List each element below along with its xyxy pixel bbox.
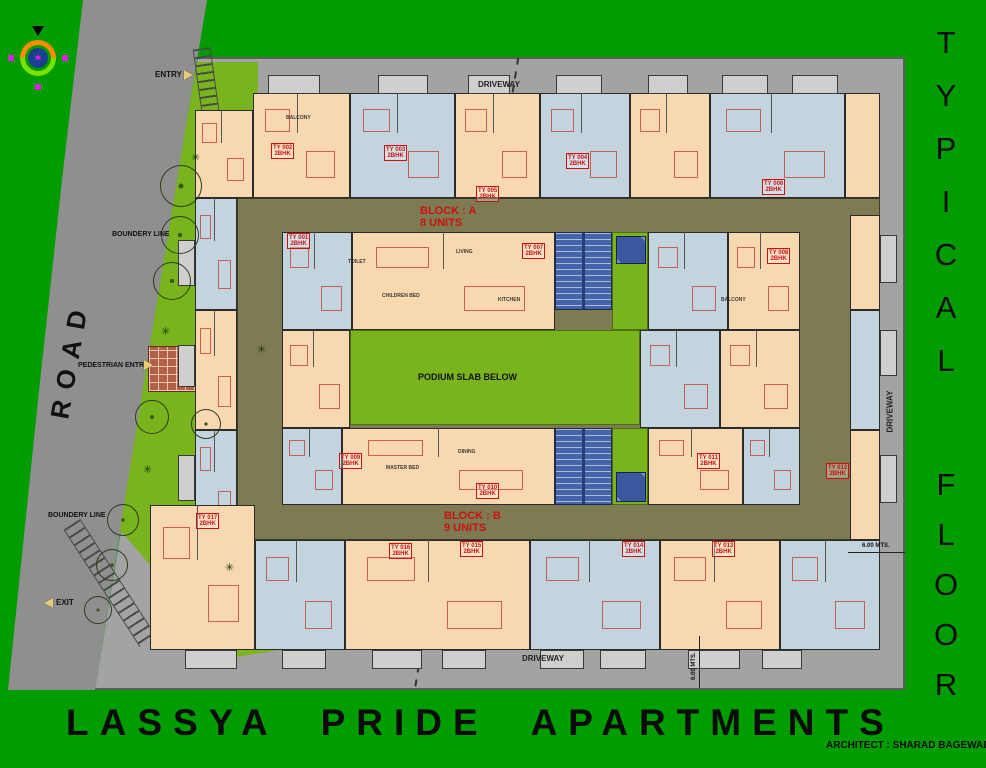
boundary-line-label-1: BOUNDERY LINE [112,231,170,238]
unit [850,430,880,540]
side-title-letter: O [916,560,976,610]
unit [850,310,880,430]
interior-wall [825,540,826,582]
dimension-right-label: 6.00 MTS. [862,543,890,549]
interior-wall [684,232,685,269]
furniture-mark [502,151,528,178]
furniture-mark [218,376,231,407]
unit-label: TY 0172BHK [196,513,219,529]
furniture-mark [726,109,761,132]
furniture-mark [363,109,390,132]
balcony [722,75,768,94]
entry-arrow-icon [184,70,193,80]
unit-label: TY 0032BHK [384,145,407,161]
interior-wall [691,428,692,457]
interior-wall [493,93,494,133]
furniture-mark [700,470,729,490]
furniture-mark [768,286,790,311]
furniture-mark [202,123,217,142]
block-b-units: 9 UNITS [444,522,486,534]
balcony [268,75,320,94]
furniture-mark [658,247,679,269]
compass-east-marker [62,55,68,61]
furniture-mark [674,557,705,581]
staircase [555,232,612,310]
tree-icon [96,549,128,581]
furniture-mark [266,557,289,581]
unit-label: TY 0052BHK [476,186,499,202]
furniture-mark [319,384,339,409]
side-title-letter: I [916,175,976,228]
room-label: BALCONY [721,298,746,303]
room-label: LIVING [456,250,473,255]
furniture-mark [546,557,580,581]
interior-wall [589,540,590,582]
unit-label: TY 0122BHK [826,463,849,479]
interior-wall [297,93,298,133]
tree-icon [153,262,191,300]
interior-wall [309,428,310,457]
side-title-letter: C [916,228,976,281]
driveway-right-label: DRIVEWAY [886,373,895,433]
side-title-typical: TYPICAL [916,16,976,387]
balcony [648,75,688,94]
units-layer: ✳✳✳✳✳TY 0012BHKTY 0022BHKTY 0032BHKTY 00… [0,0,986,768]
side-title-letter: P [916,122,976,175]
furniture-mark [447,601,503,630]
unit-label: TY 0112BHK [697,453,720,469]
furniture-mark [551,109,574,132]
lift [616,472,646,502]
room-label: BALCONY [286,116,311,121]
interior-wall [581,93,582,133]
furniture-mark [792,557,818,581]
balcony [880,455,897,503]
furniture-mark [764,384,788,409]
unit-label: TY 0062BHK [762,179,785,195]
exit-label: EXIT [56,598,74,607]
side-title-floor: FLOOR [916,460,976,710]
furniture-mark [650,345,671,367]
interior-wall [760,232,761,269]
tree-icon [84,596,112,624]
balcony [880,330,897,376]
pedestrian-entry-label: PEDESTRIAN ENTRY [78,362,149,369]
interior-wall [314,232,315,269]
interior-wall [397,93,398,133]
furniture-mark [684,384,708,409]
balcony [185,650,237,669]
tree-icon [135,400,169,434]
interior-wall [221,110,222,143]
furniture-mark [290,345,308,367]
architect-credit: ARCHITECT : SHARAD BAGEWADI [826,740,986,751]
unit [845,93,880,198]
interior-wall [443,232,444,269]
furniture-mark [305,601,332,630]
shrub-icon: ✳ [143,465,152,475]
interior-wall [214,310,215,356]
furniture-mark [784,151,825,178]
exit-arrow-icon [44,598,53,608]
site-plan-canvas: ✳✳✳✳✳TY 0012BHKTY 0022BHKTY 0032BHKTY 00… [0,0,986,768]
side-title-letter: F [916,460,976,510]
furniture-mark [465,109,487,132]
furniture-mark [602,601,641,630]
furniture-mark [367,557,415,581]
furniture-mark [640,109,661,132]
furniture-mark [737,247,756,269]
furniture-mark [692,286,716,311]
furniture-mark [227,158,244,181]
interior-wall [771,93,772,133]
boundary-line-label-2: BOUNDERY LINE [48,512,106,519]
furniture-mark [208,585,240,623]
compass-south-marker [35,84,41,90]
furniture-mark [376,247,429,269]
entry-label: ENTRY [155,70,182,79]
furniture-mark [590,151,617,178]
shrub-icon: ✳ [225,563,234,573]
balcony [372,650,422,669]
room-label: MASTER BED [386,466,419,471]
furniture-mark [315,470,333,490]
unit-label: TY 0092BHK [339,453,362,469]
side-title-letter: Y [916,69,976,122]
interior-wall [676,330,677,367]
side-title-letter: O [916,610,976,660]
room-label: DINING [458,450,476,455]
compass-west-marker [8,55,14,61]
room-label: CHILDREN BED [382,294,420,299]
balcony [442,650,486,669]
side-title-letter: A [916,281,976,334]
balcony [282,650,326,669]
block-a-name: BLOCK : A [420,205,476,217]
compass-star: ✶ [28,48,48,68]
interior-wall [756,330,757,367]
furniture-mark [774,470,791,490]
block-a-units: 8 UNITS [420,217,462,229]
furniture-mark [200,447,211,471]
interior-wall [769,428,770,457]
interior-wall [214,198,215,241]
furniture-mark [726,601,762,630]
furniture-mark [408,151,440,178]
unit [850,215,880,310]
furniture-mark [674,151,698,178]
furniture-mark [306,151,335,178]
dimension-line-bottom [699,636,700,688]
unit-label: TY 0152BHK [460,541,483,557]
pedestrian-entry-arrow-icon [144,360,153,370]
balcony [556,75,602,94]
furniture-mark [659,440,684,457]
side-title-letter: T [916,16,976,69]
dimension-bottom-label: 6.00 MTS. [691,636,697,680]
furniture-mark [730,345,751,367]
unit-label: TY 0162BHK [389,543,412,559]
furniture-mark [200,215,211,240]
tree-icon [107,504,139,536]
compass-north-flag [32,26,44,36]
side-title-letter: L [916,334,976,387]
page-title: LASSYA PRIDE APARTMENTS [66,702,806,744]
staircase [555,428,612,505]
podium-label: PODIUM SLAB BELOW [418,372,517,382]
shrub-icon: ✳ [161,327,170,337]
tree-icon [191,409,221,439]
room-label: KITCHEN [498,298,520,303]
interior-wall [313,330,314,367]
unit-label: TY 0042BHK [566,153,589,169]
driveway-top-label: DRIVEWAY [478,80,520,89]
balcony [378,75,428,94]
unit-label: TY 0022BHK [271,143,294,159]
furniture-mark [163,527,190,559]
unit-label: TY 0102BHK [476,483,499,499]
furniture-mark [368,440,423,457]
furniture-mark [750,440,765,457]
furniture-mark [835,601,865,630]
unit-label: TY 0082BHK [767,248,790,264]
driveway-bottom-label: DRIVEWAY [522,654,564,663]
side-title-letter: R [916,660,976,710]
unit-label: TY 0132BHK [712,541,735,557]
block-a-label: BLOCK : A 8 UNITS [370,205,470,217]
furniture-mark [321,286,342,311]
shrub-icon: ✳ [257,345,266,355]
unit-label: TY 0072BHK [522,243,545,259]
furniture-mark [200,328,211,354]
furniture-mark [289,440,305,457]
balcony [792,75,838,94]
block-b-label: BLOCK : B 9 UNITS [394,510,494,522]
room-label: TOILET [348,260,366,265]
lift [616,236,646,264]
interior-wall [438,428,439,457]
side-title-letter: L [916,510,976,560]
shrub-icon: ✳ [191,153,200,163]
unit-label: TY 0142BHK [622,541,645,557]
furniture-mark [290,247,308,269]
dimension-line-right [848,552,905,553]
interior-wall [666,93,667,133]
unit-label: TY 0012BHK [287,233,310,249]
interior-wall [296,540,297,582]
tree-icon [160,165,202,207]
compass-icon: ✶ [20,40,56,76]
balcony [178,455,195,501]
balcony [600,650,646,669]
furniture-mark [218,260,231,289]
balcony [762,650,802,669]
interior-wall [428,540,429,582]
balcony [880,235,897,283]
block-b-name: BLOCK : B [444,510,501,522]
balcony [178,345,195,387]
